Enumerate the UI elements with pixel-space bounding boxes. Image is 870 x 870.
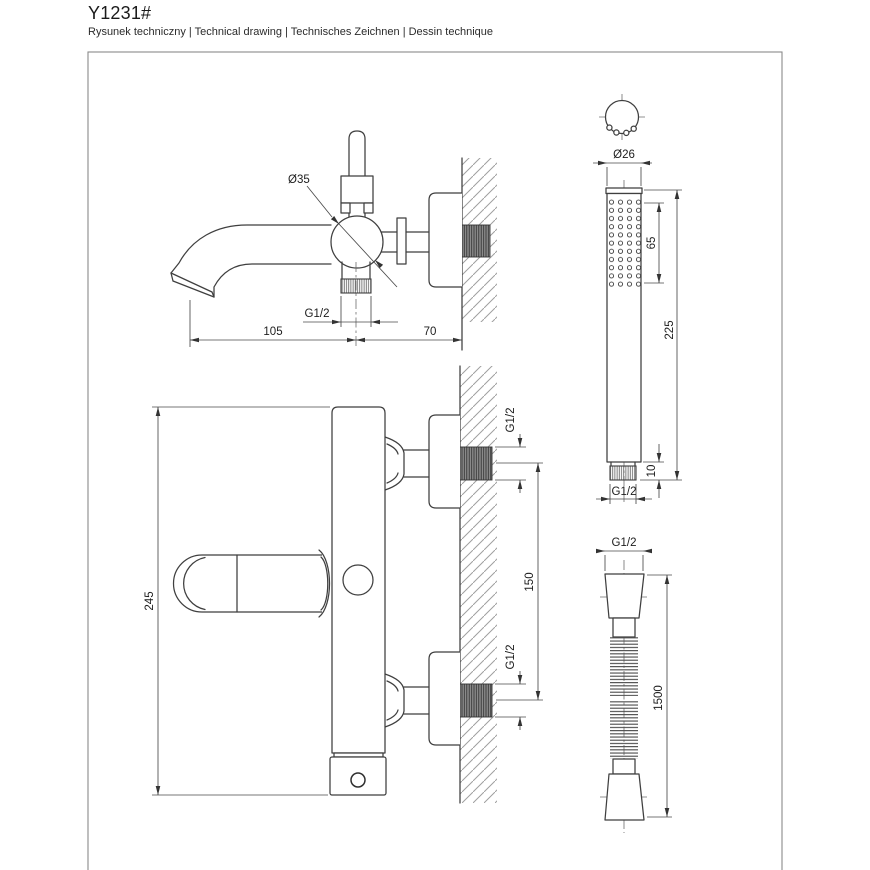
corrugation-lower (610, 701, 638, 759)
outlet-port (351, 773, 365, 787)
hand-shower-top-view (599, 94, 645, 140)
dim-label-head-diameter: Ø26 (613, 149, 635, 161)
temperature-lever (174, 550, 330, 617)
spout-side-view-drawing: Ø35 G1/2 105 70 (171, 131, 497, 350)
dim-label-wall-distance: 70 (424, 326, 437, 338)
dim-total-length: 225 (640, 190, 682, 480)
dim-label-body-height: 245 (144, 591, 156, 610)
wall-thread-bottom (460, 684, 492, 717)
dim-inlet-thread-top: G1/2 (495, 408, 526, 493)
dim-label-total-length: 225 (664, 320, 676, 339)
dim-label-diameter: Ø35 (288, 174, 310, 186)
dim-inlet-thread-bottom: G1/2 (495, 645, 526, 730)
dim-connector-length: 10 (643, 444, 664, 498)
dim-label-spout-projection: 105 (263, 326, 282, 338)
dim-label-connector-length: 10 (646, 465, 658, 478)
mixer-body (330, 407, 386, 795)
handle-lever (341, 131, 373, 217)
mixer-front-view-drawing: 245 150 G1/2 G1/2 (144, 366, 543, 803)
dim-spray-face: 65 (644, 203, 664, 283)
dim-outlet-thread: G1/2 (303, 296, 398, 327)
dim-label-outlet-thread: G1/2 (305, 308, 330, 320)
spout (171, 225, 331, 297)
wall-connector-bottom (385, 674, 429, 727)
dim-head-diameter: Ø26 (593, 149, 652, 186)
wall-thread (462, 225, 490, 257)
dim-hose-length: 1500 (647, 575, 672, 817)
dim-label-connection-spacing: 150 (524, 572, 536, 591)
escutcheon-bottom (429, 652, 460, 745)
dim-label-inlet-thread-top: G1/2 (505, 408, 517, 433)
dim-label-connection-thread: G1/2 (612, 486, 637, 498)
hand-shower-body (606, 180, 643, 502)
escutcheon (429, 193, 462, 287)
technical-drawing-canvas: Ø35 G1/2 105 70 (0, 0, 870, 870)
escutcheon-top (429, 415, 460, 508)
dim-label-hose-thread: G1/2 (612, 537, 637, 549)
diverter-knob (343, 565, 373, 595)
hose-body (605, 574, 644, 820)
technical-drawing-page: { "header": { "title": "Y1231#", "subtit… (0, 0, 870, 870)
connection-thread (610, 466, 636, 480)
dim-connection-spacing: 150 (496, 463, 543, 700)
wall-thread-top (460, 447, 492, 480)
wall-connector-top (385, 437, 429, 490)
spray-face (607, 198, 643, 288)
corrugation-upper (610, 637, 638, 696)
hand-shower-drawing: Ø26 65 (593, 94, 682, 504)
dim-label-inlet-thread-bottom: G1/2 (505, 645, 517, 670)
dim-label-hose-length: 1500 (653, 685, 665, 711)
wall-section (460, 366, 497, 803)
hose-drawing: G1/2 1500 (596, 537, 672, 833)
wall-connector (381, 218, 429, 264)
dim-label-spray-face: 65 (646, 237, 658, 250)
